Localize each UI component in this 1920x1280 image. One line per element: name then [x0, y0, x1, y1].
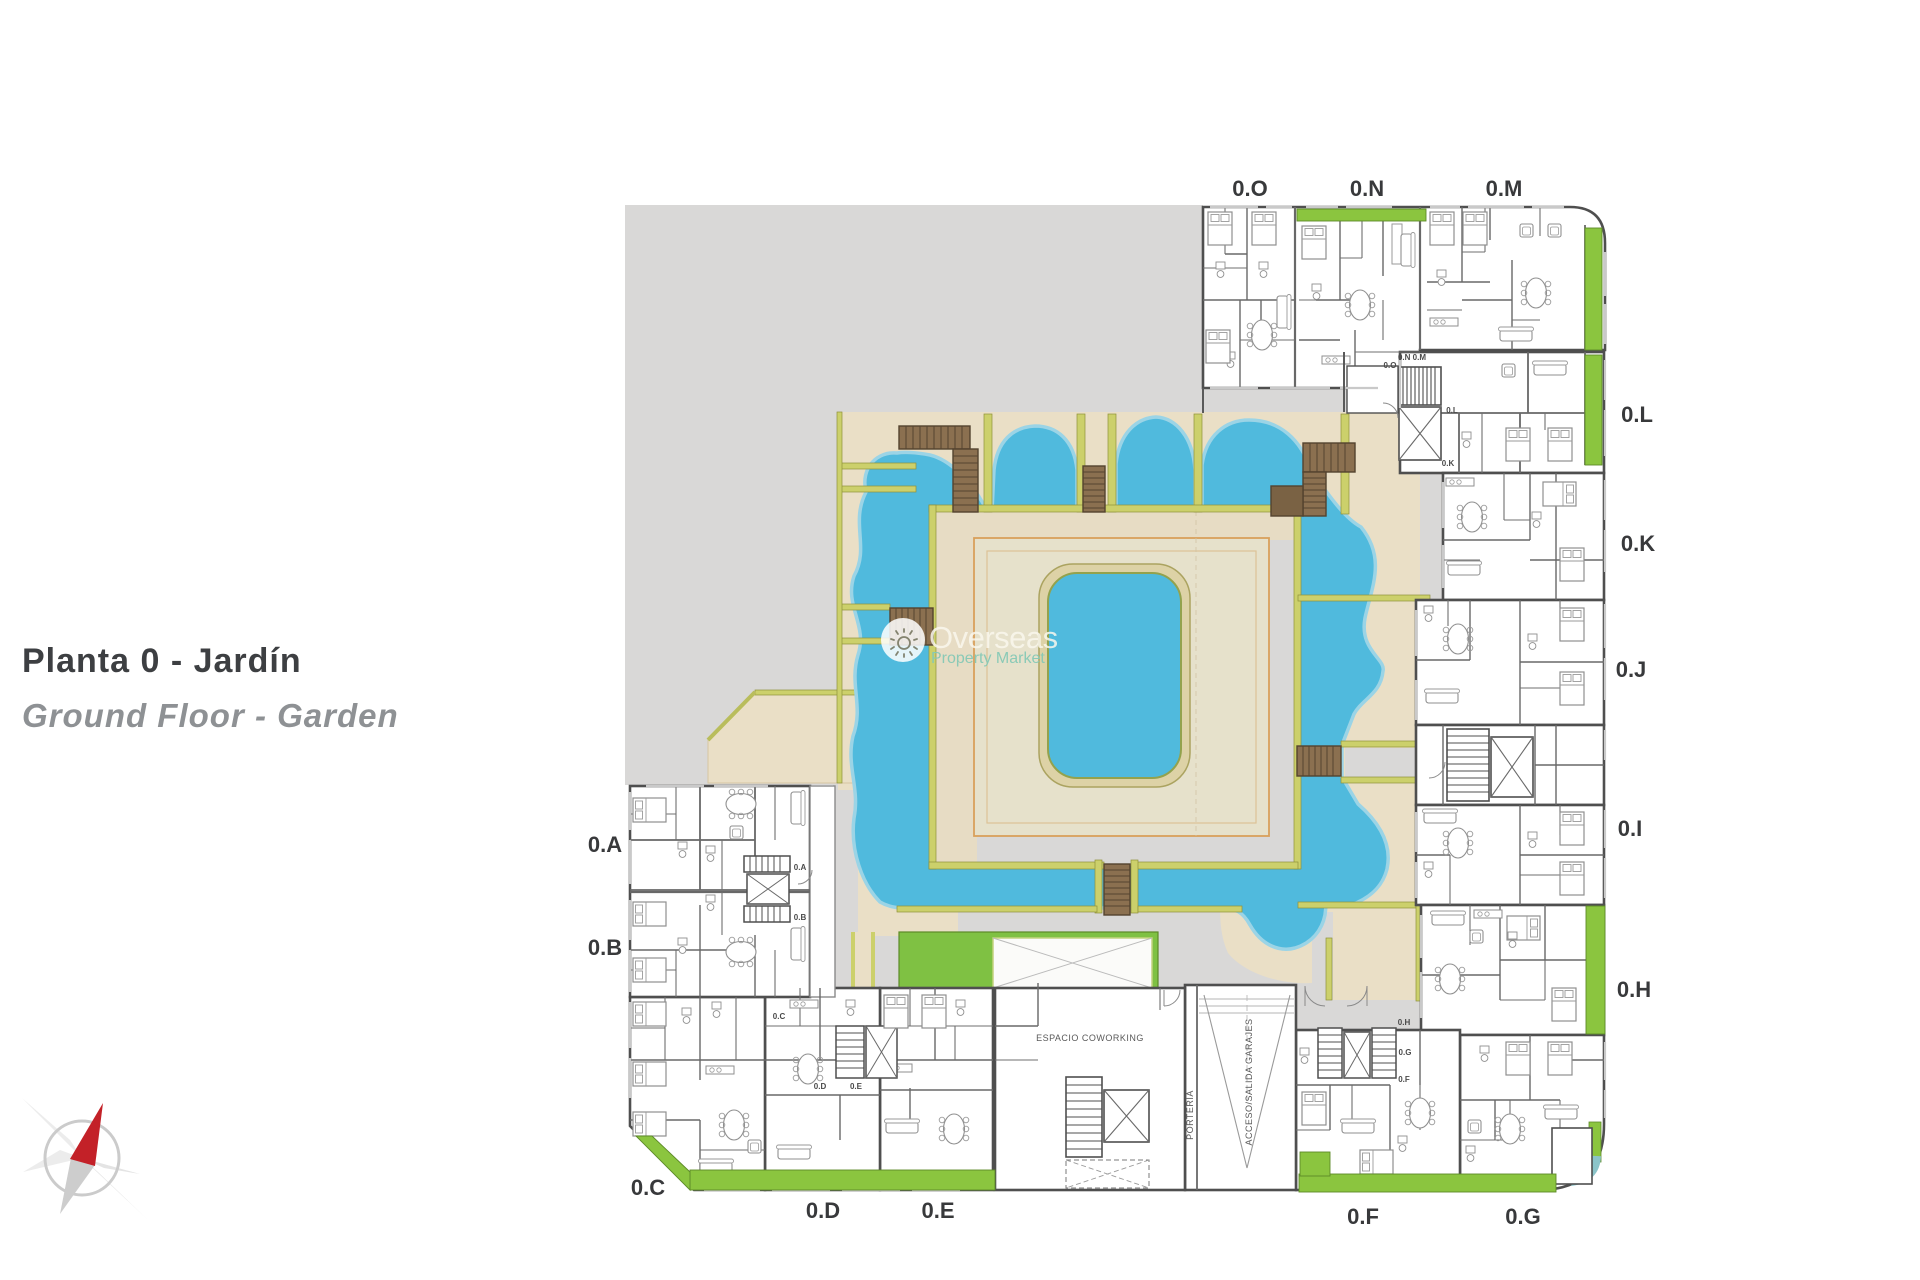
svg-text:0.J: 0.J	[1616, 657, 1647, 682]
svg-text:0.N: 0.N	[1350, 176, 1384, 201]
svg-text:0.H: 0.H	[1398, 1018, 1411, 1027]
svg-text:0.L: 0.L	[1621, 402, 1653, 427]
svg-text:0.G: 0.G	[1399, 1048, 1412, 1057]
svg-text:0.I: 0.I	[1618, 816, 1642, 841]
svg-text:0.N 0.M: 0.N 0.M	[1398, 353, 1426, 362]
svg-text:0.O: 0.O	[1384, 361, 1397, 370]
svg-text:0.E: 0.E	[850, 1082, 863, 1091]
svg-text:ESPACIO COWORKING: ESPACIO COWORKING	[1036, 1033, 1144, 1043]
svg-text:0.D: 0.D	[806, 1198, 840, 1223]
svg-text:PORTERIA: PORTERIA	[1185, 1090, 1195, 1140]
svg-text:Property Market: Property Market	[931, 650, 1045, 667]
svg-text:0.F: 0.F	[1347, 1204, 1379, 1229]
svg-text:0.K: 0.K	[1442, 459, 1455, 468]
svg-text:0.E: 0.E	[921, 1198, 954, 1223]
svg-text:0.C: 0.C	[631, 1175, 665, 1200]
svg-text:0.A: 0.A	[794, 863, 807, 872]
svg-text:0.L: 0.L	[1446, 406, 1458, 415]
svg-text:0.M: 0.M	[1486, 176, 1523, 201]
svg-text:ACCESO/SALIDA GARAJES: ACCESO/SALIDA GARAJES	[1244, 1018, 1254, 1145]
svg-text:Ground Floor - Garden: Ground Floor - Garden	[22, 697, 399, 734]
svg-text:0.C: 0.C	[773, 1012, 786, 1021]
svg-text:0.B: 0.B	[794, 913, 807, 922]
svg-text:0.G: 0.G	[1505, 1204, 1540, 1229]
svg-text:Planta 0 - Jardín: Planta 0 - Jardín	[22, 642, 302, 680]
svg-text:0.K: 0.K	[1621, 531, 1655, 556]
svg-text:0.F: 0.F	[1398, 1075, 1410, 1084]
svg-text:0.H: 0.H	[1617, 977, 1651, 1002]
svg-text:0.B: 0.B	[588, 935, 622, 960]
svg-text:0.A: 0.A	[588, 832, 622, 857]
svg-text:0.O: 0.O	[1232, 176, 1267, 201]
svg-text:0.D: 0.D	[814, 1082, 827, 1091]
